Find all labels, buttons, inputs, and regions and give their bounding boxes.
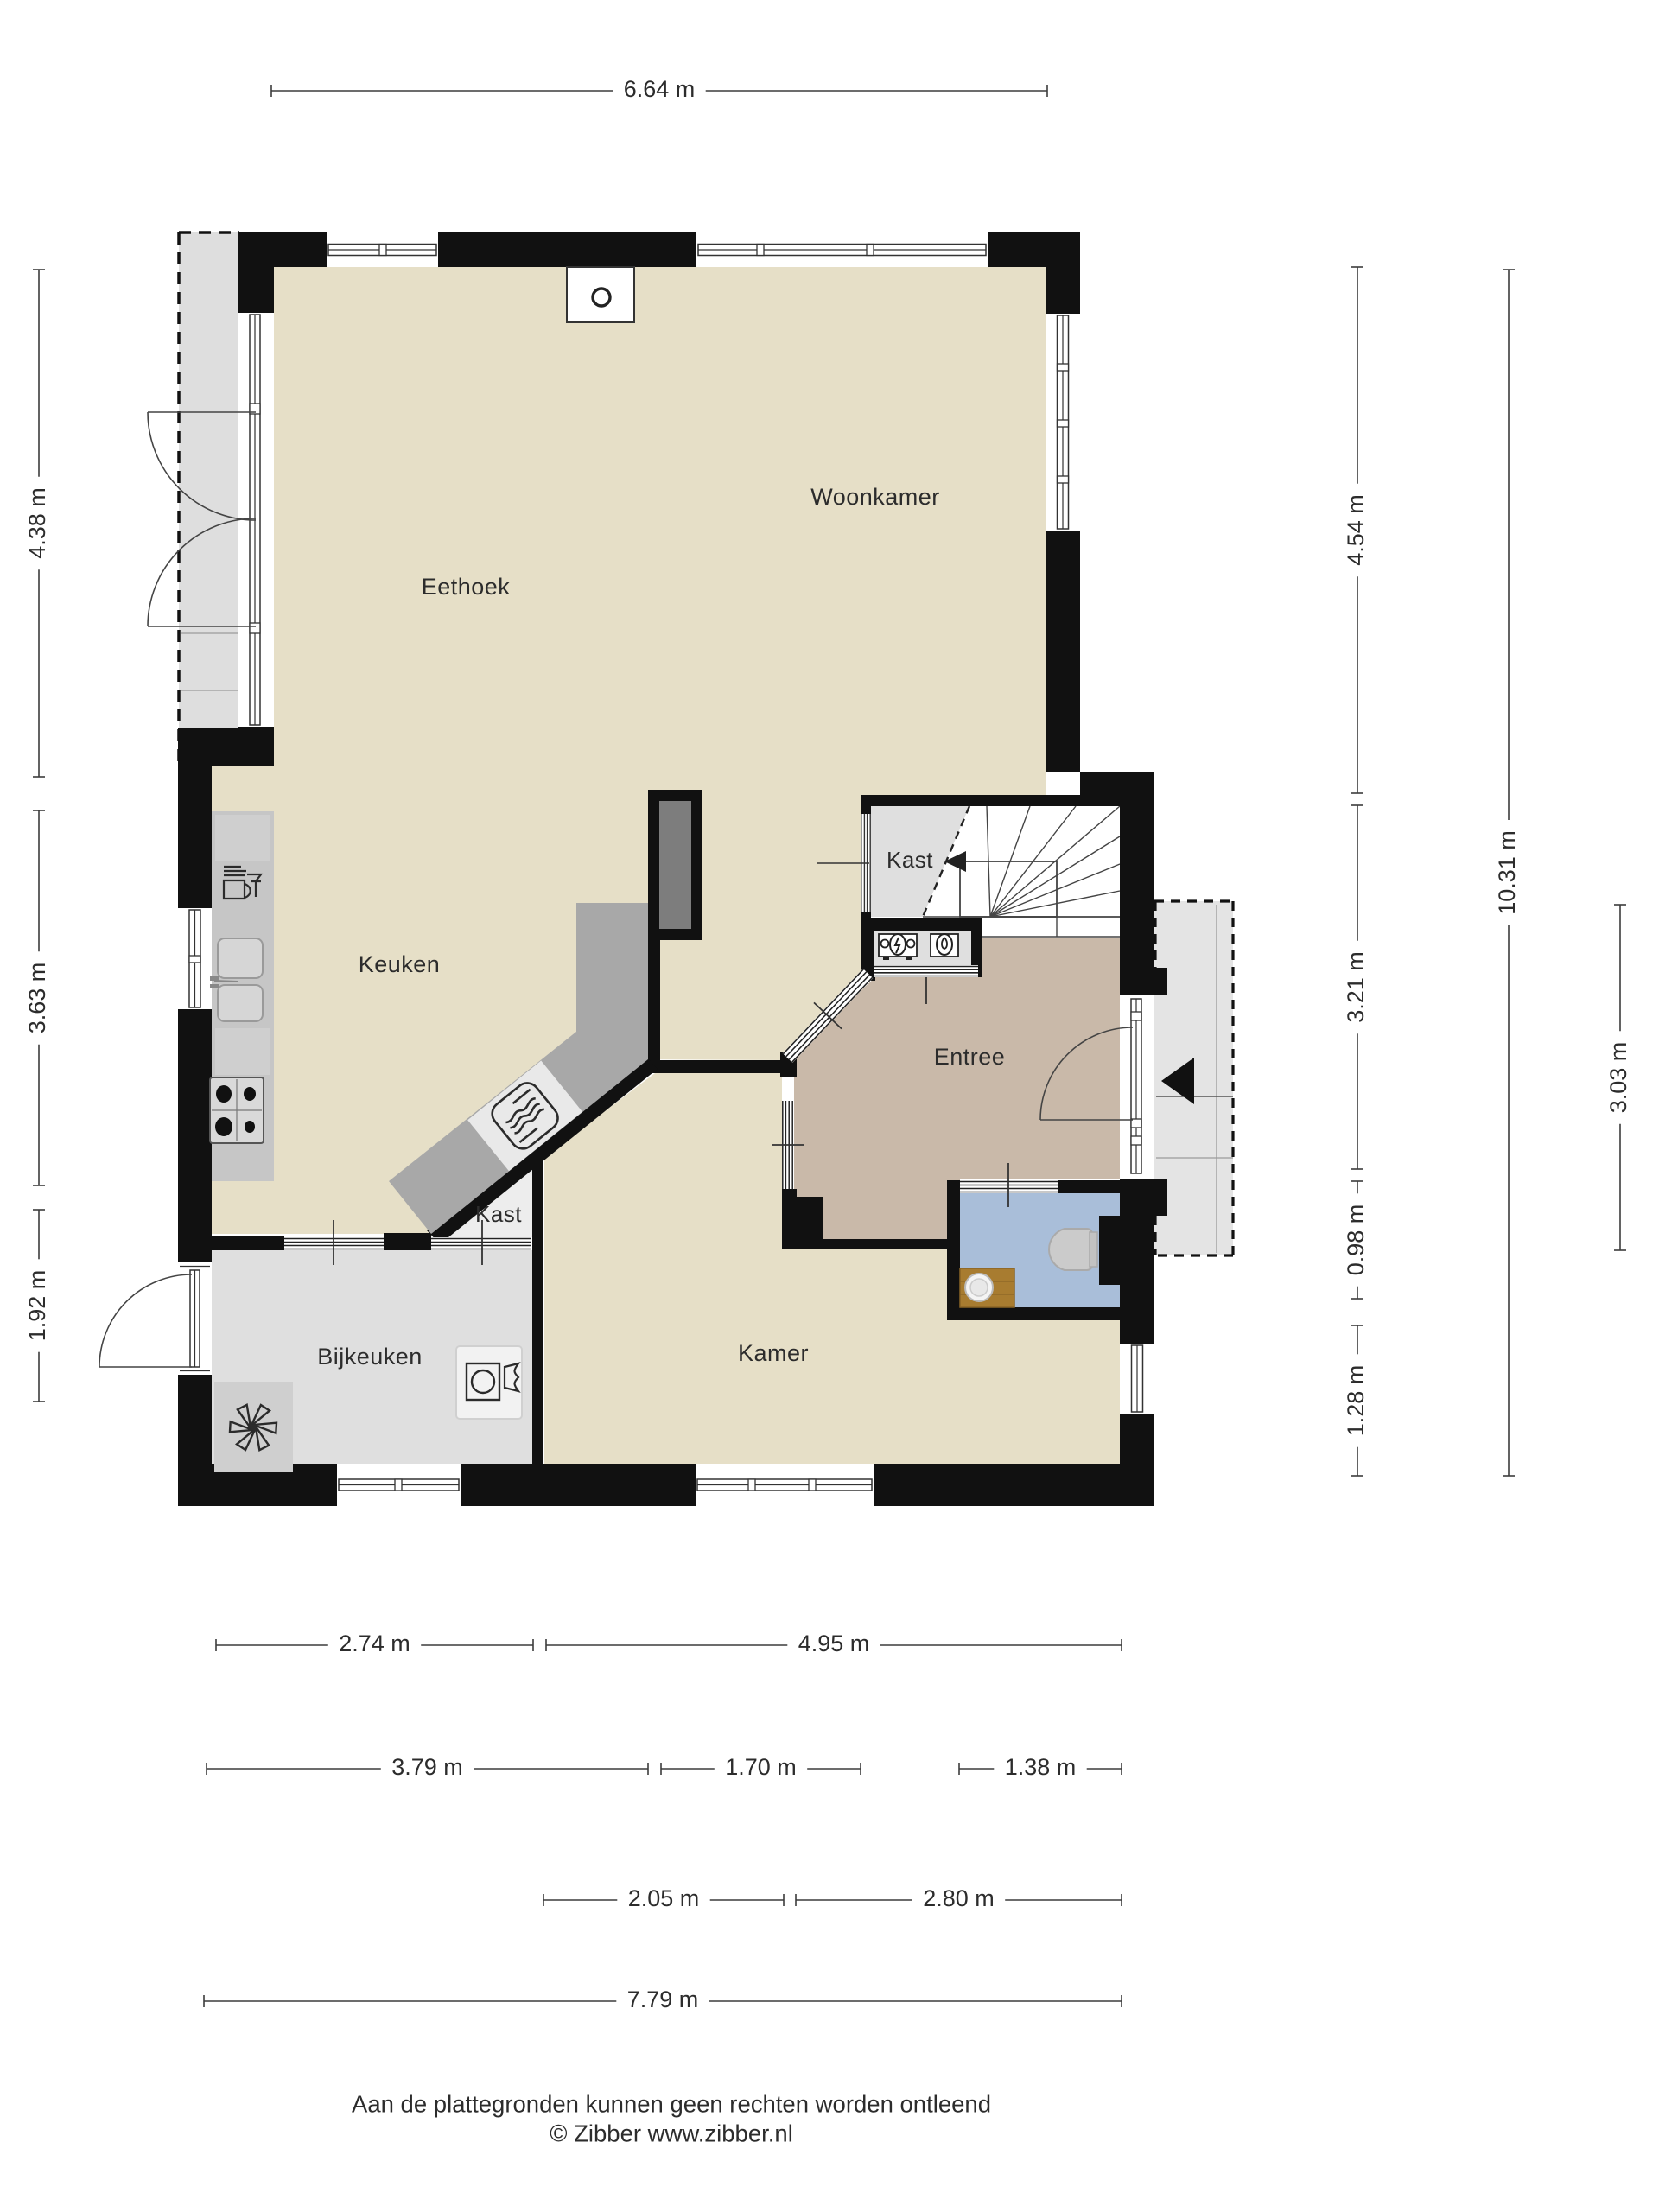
svg-text:4.95 m: 4.95 m bbox=[798, 1630, 870, 1656]
svg-text:2.80 m: 2.80 m bbox=[923, 1885, 995, 1911]
svg-text:© Zibber www.zibber.nl: © Zibber www.zibber.nl bbox=[550, 2120, 793, 2146]
svg-text:3.03 m: 3.03 m bbox=[1605, 1042, 1631, 1114]
svg-text:Entree: Entree bbox=[934, 1044, 1006, 1070]
svg-text:2.74 m: 2.74 m bbox=[339, 1630, 410, 1656]
svg-text:3.63 m: 3.63 m bbox=[24, 963, 50, 1034]
svg-text:1.28 m: 1.28 m bbox=[1343, 1365, 1369, 1437]
svg-text:3.21 m: 3.21 m bbox=[1343, 951, 1369, 1023]
svg-text:Bijkeuken: Bijkeuken bbox=[317, 1344, 423, 1370]
svg-text:1.70 m: 1.70 m bbox=[725, 1754, 797, 1780]
svg-text:Woonkamer: Woonkamer bbox=[810, 484, 940, 510]
svg-text:Kast: Kast bbox=[887, 847, 933, 873]
svg-text:6.64 m: 6.64 m bbox=[624, 76, 696, 102]
svg-text:2.05 m: 2.05 m bbox=[628, 1885, 700, 1911]
svg-text:4.54 m: 4.54 m bbox=[1343, 494, 1369, 566]
svg-text:1.92 m: 1.92 m bbox=[24, 1270, 50, 1342]
svg-text:Keuken: Keuken bbox=[359, 951, 441, 977]
svg-text:0.98 m: 0.98 m bbox=[1343, 1205, 1369, 1276]
svg-text:Kast: Kast bbox=[475, 1201, 522, 1227]
svg-text:10.31 m: 10.31 m bbox=[1494, 830, 1520, 915]
svg-text:Eethoek: Eethoek bbox=[422, 574, 511, 600]
svg-text:1.38 m: 1.38 m bbox=[1005, 1754, 1077, 1780]
svg-text:4.38 m: 4.38 m bbox=[24, 487, 50, 559]
svg-text:3.79 m: 3.79 m bbox=[391, 1754, 463, 1780]
svg-text:7.79 m: 7.79 m bbox=[627, 1986, 699, 2012]
svg-text:Aan de plattegronden kunnen ge: Aan de plattegronden kunnen geen rechten… bbox=[352, 2090, 991, 2117]
svg-text:Kamer: Kamer bbox=[738, 1340, 809, 1366]
